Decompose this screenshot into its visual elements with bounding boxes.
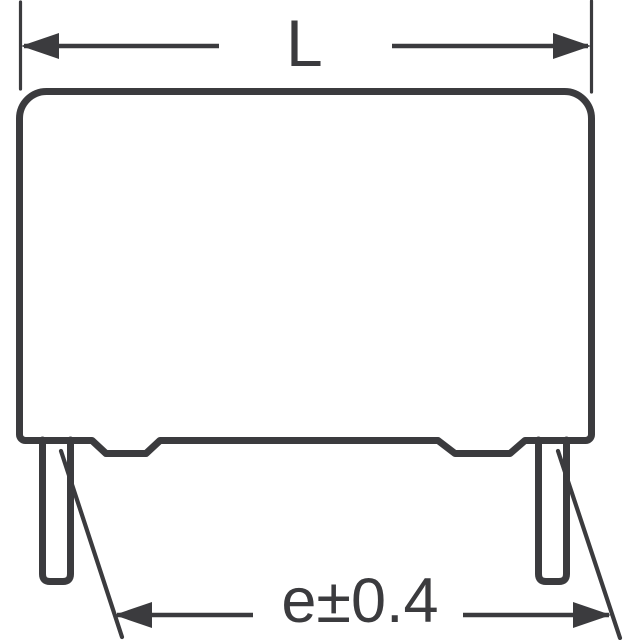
leads — [43, 440, 567, 582]
component-body — [20, 92, 592, 454]
arrowhead-left-icon — [21, 33, 59, 59]
lead-spacing-dimension-label: e±0.4 — [281, 566, 438, 636]
dimension-length: L — [21, 1, 592, 92]
capacitor-body-outline — [20, 92, 592, 454]
diagram-canvas: L e±0.4 — [0, 0, 640, 640]
arrowhead-right-icon — [553, 33, 591, 59]
length-dimension-label: L — [286, 6, 323, 80]
arrowhead-right-icon — [573, 602, 611, 628]
capacitor-dimension-diagram: L e±0.4 — [0, 0, 640, 640]
